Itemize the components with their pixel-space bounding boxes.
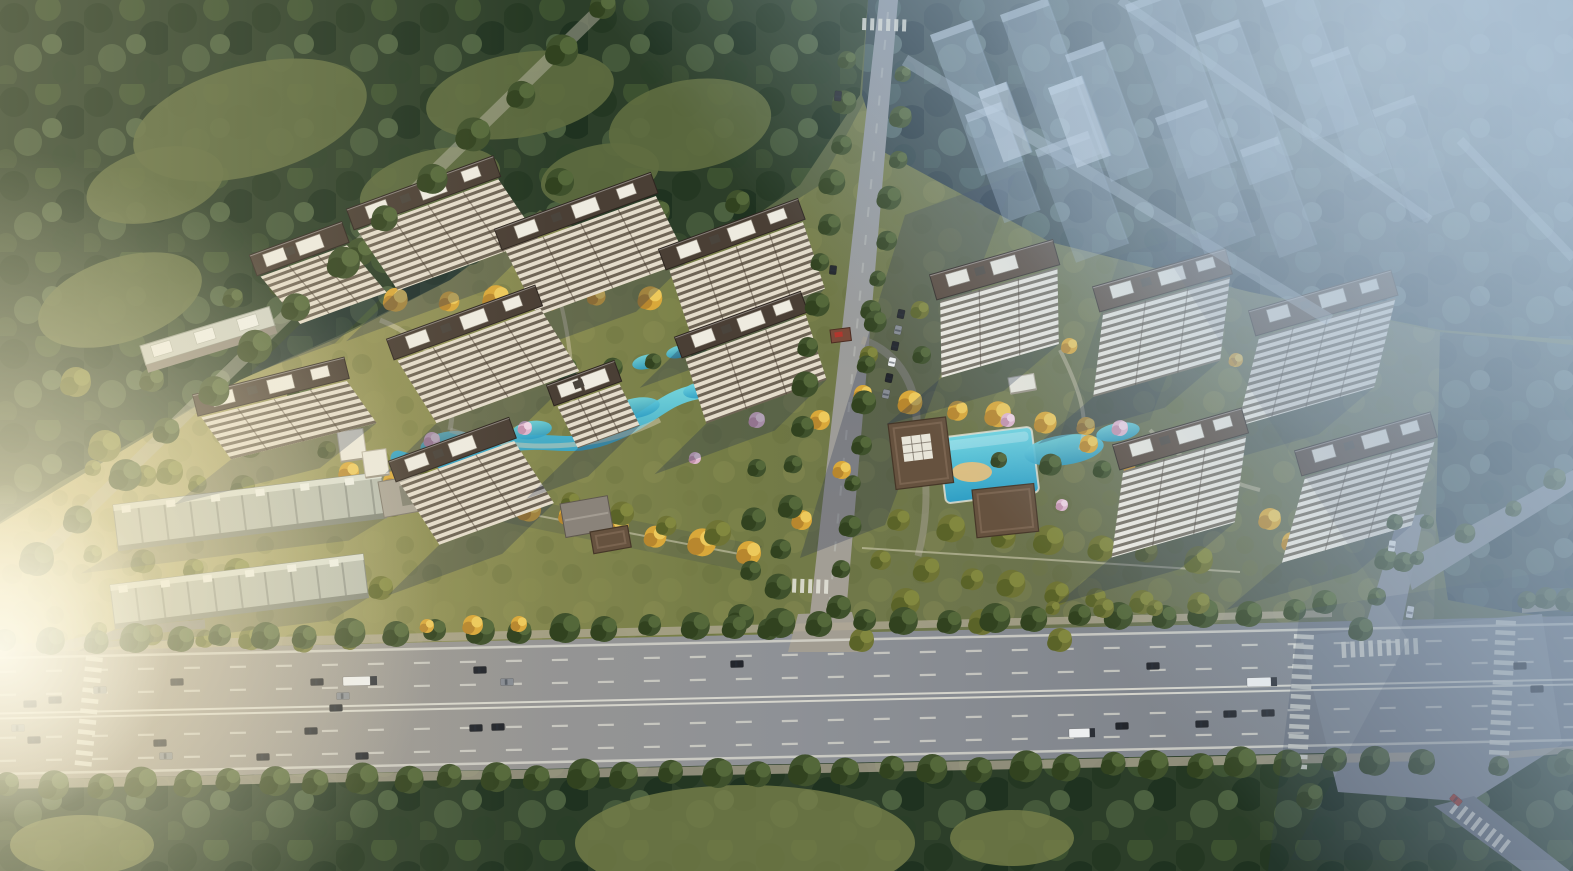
rendering-canvas <box>0 0 1573 871</box>
atmosphere <box>0 0 1573 871</box>
aerial-site-rendering <box>0 0 1573 871</box>
